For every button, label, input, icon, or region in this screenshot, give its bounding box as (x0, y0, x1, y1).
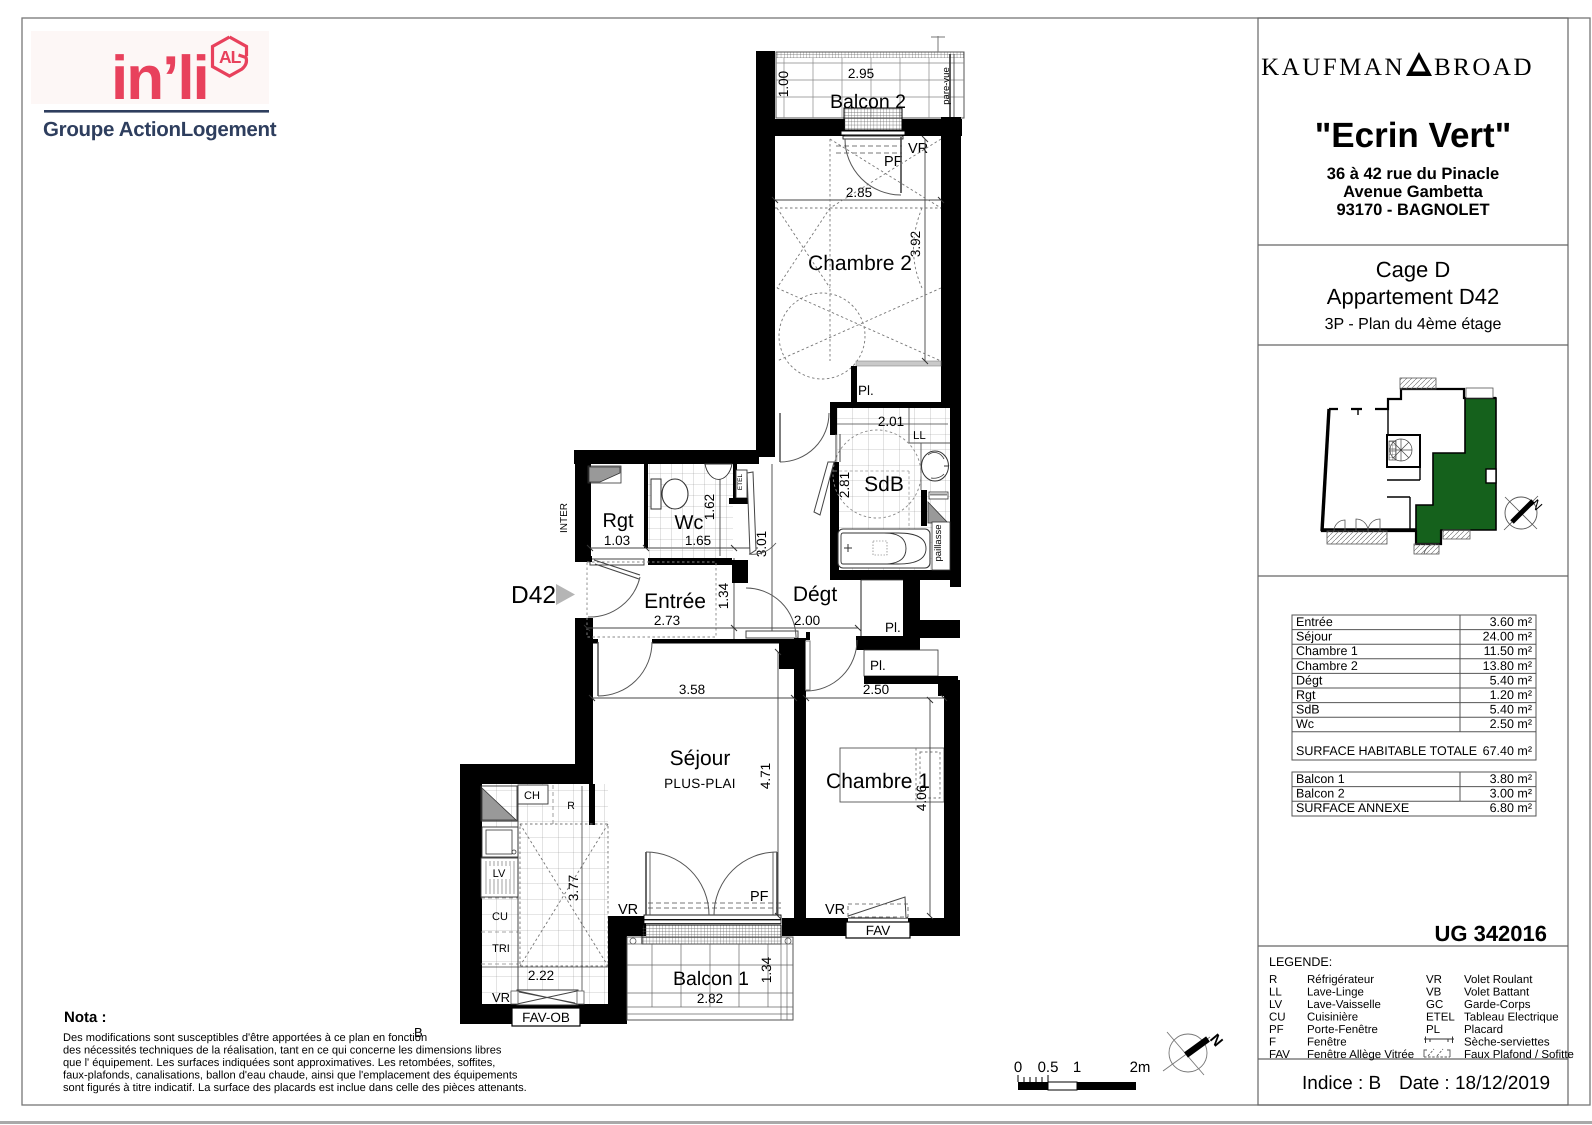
svg-text:LL: LL (913, 430, 926, 442)
svg-text:Balcon 2: Balcon 2 (1296, 787, 1345, 801)
svg-text:INTER: INTER (559, 503, 570, 533)
svg-text:2.01: 2.01 (878, 414, 904, 429)
svg-text:Dégt: Dégt (1296, 673, 1323, 687)
svg-text:VB: VB (1426, 987, 1442, 999)
svg-text:5.40 m²: 5.40 m² (1490, 703, 1532, 717)
svg-text:FAV: FAV (1269, 1049, 1290, 1061)
svg-text:Réfrigérateur: Réfrigérateur (1307, 974, 1374, 986)
svg-text:2.85: 2.85 (846, 185, 872, 200)
svg-text:sont figurés à titre indicatif: sont figurés à titre indicatif. La surfa… (63, 1082, 527, 1094)
svg-text:CH: CH (524, 790, 540, 802)
svg-text:Des modifications sont suscept: Des modifications sont susceptibles d'êt… (63, 1032, 427, 1044)
svg-text:Entrée: Entrée (1296, 615, 1333, 629)
svg-text:"Ecrin Vert": "Ecrin Vert" (1315, 116, 1512, 155)
svg-text:2.82: 2.82 (697, 991, 723, 1006)
svg-text:1.34: 1.34 (759, 956, 774, 983)
svg-text:Balcon 1: Balcon 1 (673, 968, 749, 990)
svg-text:Groupe ActionLogement: Groupe ActionLogement (43, 118, 277, 141)
svg-text:Chambre 1: Chambre 1 (1296, 644, 1358, 658)
svg-text:Volet Roulant: Volet Roulant (1464, 974, 1533, 986)
svg-text:3.00 m²: 3.00 m² (1490, 787, 1532, 801)
svg-text:Fenêtre Allège Vitrée: Fenêtre Allège Vitrée (1307, 1049, 1414, 1061)
svg-text:2.00: 2.00 (794, 613, 820, 628)
svg-text:R: R (567, 800, 575, 812)
svg-text:3P - Plan du 4ème étage: 3P - Plan du 4ème étage (1325, 316, 1502, 333)
svg-text:des nécessités techniques de l: des nécessités techniques de la réalisat… (63, 1045, 502, 1057)
svg-text:1.65: 1.65 (685, 533, 711, 548)
svg-text:1.20 m²: 1.20 m² (1490, 688, 1532, 702)
svg-text:1.34: 1.34 (716, 582, 731, 609)
svg-text:LV: LV (493, 868, 506, 880)
svg-text:0.5: 0.5 (1038, 1059, 1059, 1076)
svg-text:Faux Plafond / Sofitte: Faux Plafond / Sofitte (1464, 1049, 1574, 1061)
svg-text:PF: PF (750, 889, 769, 905)
svg-text:PF: PF (1269, 1024, 1284, 1036)
svg-text:VR: VR (825, 902, 845, 918)
svg-text:Chambre 2: Chambre 2 (808, 252, 912, 275)
svg-text:Fenêtre: Fenêtre (1307, 1037, 1347, 1049)
svg-text:2.95: 2.95 (848, 66, 874, 81)
svg-text:Tableau Electrique: Tableau Electrique (1464, 1012, 1559, 1024)
svg-text:SdB: SdB (864, 473, 904, 496)
svg-text:UG 342016: UG 342016 (1434, 921, 1547, 946)
svg-text:36 à 42 rue du Pinacle: 36 à 42 rue du Pinacle (1327, 165, 1499, 183)
svg-text:0: 0 (1014, 1059, 1022, 1076)
svg-text:3.92: 3.92 (908, 231, 923, 257)
svg-text:Lave-Linge: Lave-Linge (1307, 987, 1364, 999)
svg-text:FAV-OB: FAV-OB (522, 1010, 570, 1025)
svg-text:F: F (1269, 1037, 1276, 1049)
svg-text:3.58: 3.58 (679, 682, 705, 697)
svg-text:R: R (1269, 974, 1277, 986)
svg-text:3.77: 3.77 (566, 875, 581, 901)
svg-text:Rgt: Rgt (1296, 688, 1316, 702)
svg-text:Wc: Wc (675, 512, 704, 534)
svg-text:VR: VR (1426, 974, 1442, 986)
svg-text:2.50: 2.50 (863, 682, 889, 697)
svg-text:Pl.: Pl. (858, 383, 874, 398)
svg-text:LV: LV (1269, 999, 1283, 1011)
svg-text:PF: PF (884, 154, 903, 170)
svg-text:11.50 m²: 11.50 m² (1484, 644, 1532, 658)
svg-text:Wc: Wc (1296, 717, 1314, 731)
svg-text:Séjour: Séjour (670, 747, 731, 770)
svg-text:PLUS-PLAI: PLUS-PLAI (664, 776, 736, 791)
svg-text:3.60 m²: 3.60 m² (1490, 615, 1532, 629)
svg-text:Nota :: Nota : (64, 1009, 107, 1026)
svg-text:B: B (414, 1025, 423, 1040)
svg-text:13.80 m²: 13.80 m² (1483, 659, 1532, 673)
svg-text:Avenue Gambetta: Avenue Gambetta (1343, 183, 1484, 201)
svg-text:TRI: TRI (492, 943, 510, 955)
svg-text:PL: PL (1426, 1024, 1441, 1036)
svg-text:Garde-Corps: Garde-Corps (1464, 999, 1531, 1011)
svg-text:Dégt: Dégt (793, 583, 838, 606)
svg-text:2m: 2m (1130, 1059, 1151, 1076)
svg-text:SURFACE ANNEXE: SURFACE ANNEXE (1296, 801, 1409, 815)
svg-text:in’li: in’li (111, 44, 208, 113)
svg-text:AL: AL (219, 47, 242, 67)
svg-text:2.50 m²: 2.50 m² (1490, 717, 1532, 731)
svg-text:6.80 m²: 6.80 m² (1490, 801, 1532, 815)
svg-text:KAUFMAN: KAUFMAN (1261, 54, 1405, 81)
svg-text:93170 - BAGNOLET: 93170 - BAGNOLET (1336, 201, 1489, 219)
svg-text:1.00: 1.00 (776, 71, 791, 97)
svg-text:pare-vue: pare-vue (941, 67, 952, 105)
svg-text:Balcon 1: Balcon 1 (1296, 772, 1345, 786)
svg-text:1: 1 (1073, 1059, 1081, 1076)
svg-text:Appartement D42: Appartement D42 (1327, 284, 1499, 309)
svg-text:Pl.: Pl. (870, 658, 886, 673)
svg-text:Pl.: Pl. (885, 620, 901, 635)
svg-text:N: N (1528, 496, 1545, 513)
svg-text:ETEL: ETEL (1426, 1012, 1455, 1024)
svg-text:1.62: 1.62 (702, 494, 717, 520)
svg-text:Porte-Fenêtre: Porte-Fenêtre (1307, 1024, 1378, 1036)
svg-text:GC: GC (1426, 999, 1443, 1011)
svg-text:5.40 m²: 5.40 m² (1490, 673, 1532, 687)
svg-text:BROAD: BROAD (1434, 54, 1534, 81)
svg-text:67.40 m²: 67.40 m² (1483, 744, 1532, 758)
svg-text:Placard: Placard (1464, 1024, 1503, 1036)
svg-text:Date : 18/12/2019: Date : 18/12/2019 (1399, 1073, 1550, 1094)
svg-text:N: N (1206, 1031, 1226, 1050)
svg-text:CU: CU (492, 911, 508, 923)
svg-text:LL: LL (1269, 987, 1282, 999)
svg-text:Sèche-serviettes: Sèche-serviettes (1464, 1037, 1550, 1049)
svg-text:CU: CU (1269, 1012, 1286, 1024)
svg-text:2.73: 2.73 (654, 613, 680, 628)
svg-text:ETEL: ETEL (737, 473, 744, 490)
svg-text:2.81: 2.81 (837, 472, 852, 498)
svg-text:Volet Battant: Volet Battant (1464, 987, 1530, 999)
svg-text:LEGENDE:: LEGENDE: (1269, 955, 1332, 969)
svg-text:1.03: 1.03 (604, 533, 630, 548)
svg-text:3.80 m²: 3.80 m² (1490, 772, 1532, 786)
svg-text:Séjour: Séjour (1296, 630, 1332, 644)
svg-text:paillasse: paillasse (933, 525, 944, 562)
svg-text:4.06: 4.06 (914, 785, 929, 811)
svg-text:D42: D42 (511, 582, 556, 609)
svg-text:4.71: 4.71 (758, 763, 773, 789)
svg-text:Rgt: Rgt (602, 510, 634, 532)
svg-text:Chambre 2: Chambre 2 (1296, 659, 1358, 673)
svg-text:SURFACE HABITABLE TOTALE: SURFACE HABITABLE TOTALE (1296, 744, 1477, 758)
svg-text:VR: VR (492, 990, 510, 1005)
svg-text:Cage D: Cage D (1376, 257, 1451, 282)
svg-text:24.00 m²: 24.00 m² (1483, 630, 1532, 644)
svg-text:VR: VR (618, 902, 638, 918)
svg-text:FAV: FAV (866, 923, 891, 938)
svg-text:que l' équipement. Les surface: que l' équipement. Les surfaces indiquée… (63, 1057, 495, 1069)
svg-text:Lave-Vaisselle: Lave-Vaisselle (1307, 999, 1381, 1011)
svg-text:SdB: SdB (1296, 703, 1320, 717)
svg-text:Indice : B: Indice : B (1302, 1073, 1381, 1094)
svg-text:faux-plafonds, canalisations,: faux-plafonds, canalisations, ballon d'e… (63, 1070, 518, 1082)
svg-text:2.22: 2.22 (528, 968, 554, 983)
svg-text:Cuisinière: Cuisinière (1307, 1012, 1358, 1024)
svg-text:Entrée: Entrée (644, 590, 706, 613)
